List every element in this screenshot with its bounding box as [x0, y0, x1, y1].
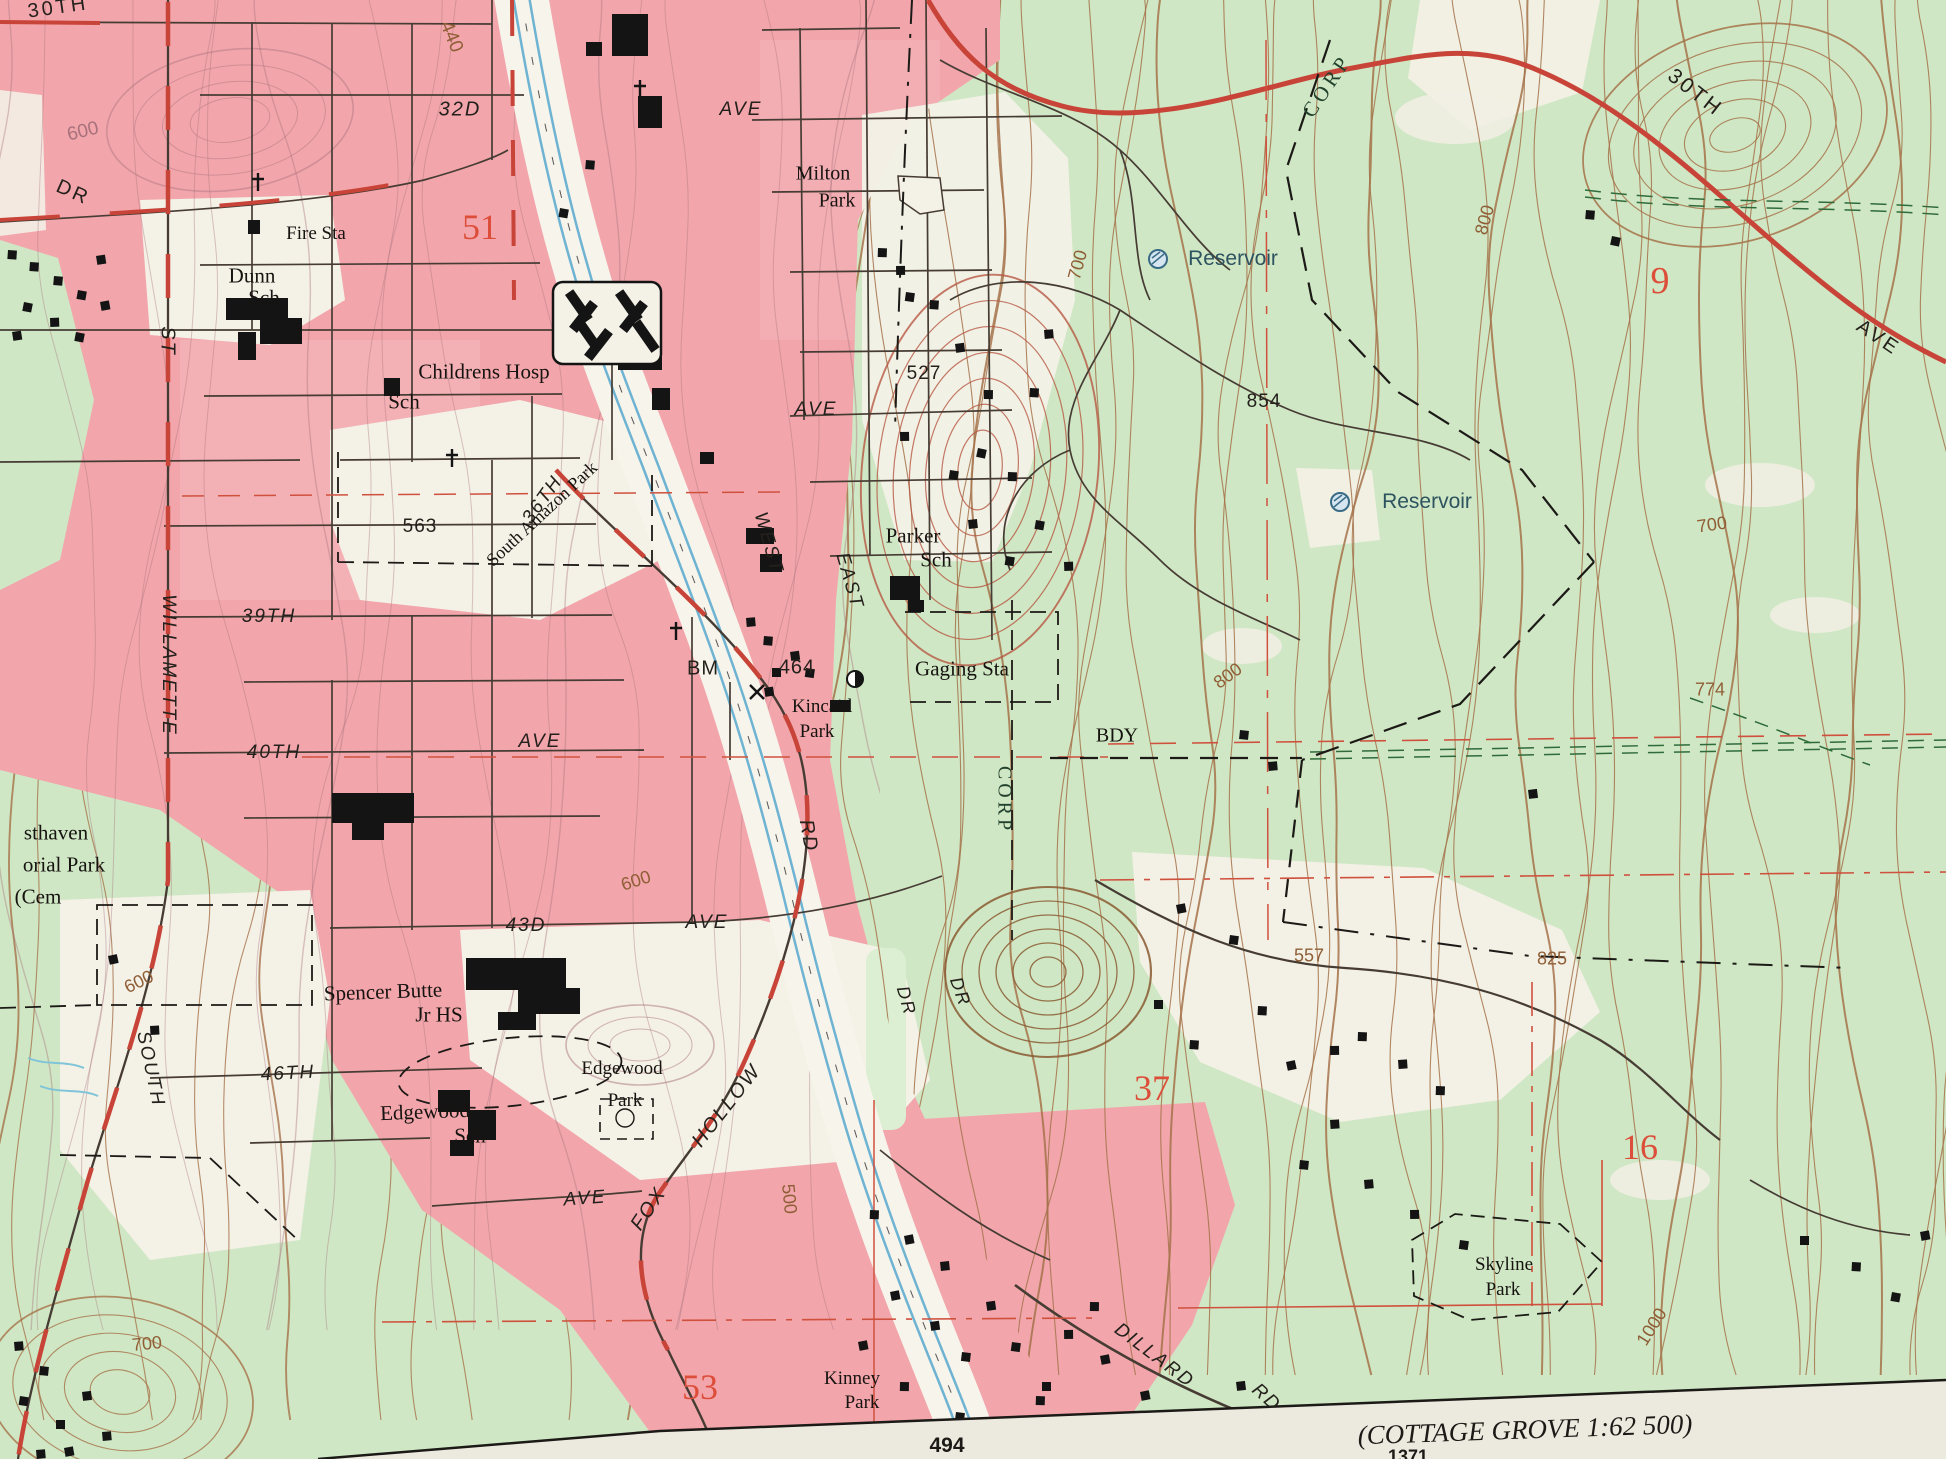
map-graphics — [0, 0, 1946, 1459]
topo-map: (COTTAGE GROVE 1:62 500) 494 1371 30TH44… — [0, 0, 1946, 1459]
map-base-regions — [0, 0, 1946, 1459]
